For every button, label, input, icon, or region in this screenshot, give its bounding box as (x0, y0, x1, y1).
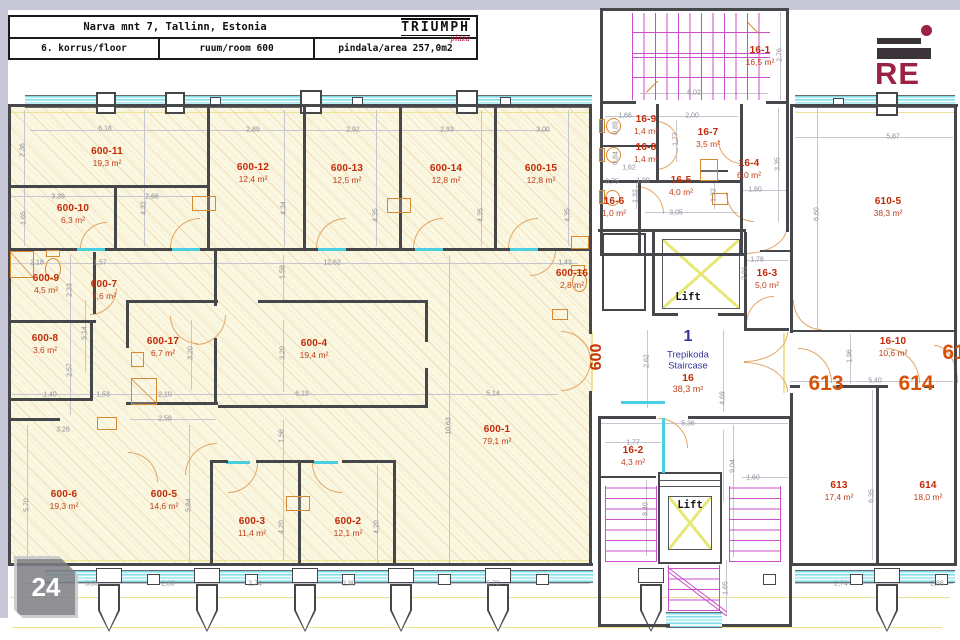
dim-label: 1,80 (748, 187, 762, 194)
dimension-line (27, 425, 28, 563)
room-id: 600-12 (237, 161, 269, 174)
dimension-line (20, 583, 590, 584)
room-id: 16-3 (755, 267, 779, 280)
wall (425, 368, 428, 405)
dim-label: 5,14 (486, 391, 500, 398)
dim-label: 5,70 (24, 498, 31, 512)
room-id: 16-10 (879, 335, 908, 348)
wall (836, 385, 888, 388)
room-cell: ruum/room 600 (160, 39, 315, 58)
staircase-name-en: Staircase (668, 361, 708, 372)
dim-label: 0,84 (613, 151, 620, 165)
wall (790, 104, 958, 107)
room-id: 600-10 (57, 202, 89, 215)
column (878, 586, 896, 630)
door-label-614: 614 (898, 372, 933, 396)
door-label-613: 613 (808, 372, 843, 396)
room-id: 614 (914, 479, 943, 492)
dim-label: 6,02 (687, 90, 701, 97)
door-arc (744, 332, 788, 362)
wall (790, 330, 956, 332)
room-area: 6,0 m² (737, 170, 761, 181)
wall (302, 460, 314, 463)
room-id: 613 (825, 479, 854, 492)
wall (8, 418, 60, 421)
room-area: 12,8 m² (525, 175, 557, 186)
room-label-600-14: 600-1412,8 m² (430, 162, 462, 186)
door-arc (793, 300, 821, 330)
wall (346, 248, 415, 251)
dimension-line (377, 465, 378, 563)
dim-label: 1,00 (636, 178, 650, 185)
wall (790, 104, 793, 333)
wall (600, 8, 789, 11)
wall (214, 338, 217, 403)
wall (210, 460, 228, 463)
room-label-16-1: 16-116,5 m² (746, 44, 775, 68)
window-sill (662, 418, 665, 473)
dimension-line (795, 137, 953, 138)
stair-flight (605, 486, 657, 562)
room-area: 12,8 m² (430, 175, 462, 186)
window-sill (314, 461, 338, 464)
dim-label: 2,91 (742, 266, 749, 280)
wall (126, 303, 129, 348)
room-area: 11,4 m² (238, 528, 266, 539)
dimension-line (283, 255, 284, 303)
wall (598, 416, 656, 419)
room-label-614: 61418,0 m² (914, 479, 943, 503)
dim-label: 10,63 (446, 417, 453, 435)
room-id: 600-6 (50, 488, 79, 501)
column (489, 586, 507, 630)
column-tab (388, 568, 414, 583)
room-id: 600-9 (33, 272, 60, 285)
room-id: 16-4 (737, 157, 761, 170)
wall (790, 563, 956, 566)
wall (598, 416, 601, 626)
dim-label: 1,57 (93, 260, 107, 267)
room-area: 1,4 m² (634, 154, 658, 165)
dim-label: 1,56 (279, 429, 286, 443)
column (100, 586, 118, 630)
door-arc (128, 452, 158, 482)
lift-door-line (660, 486, 720, 487)
room-id: 600-7 (91, 278, 118, 291)
dimension-line (481, 110, 482, 246)
room-id: 600-14 (430, 162, 462, 175)
accent-line (10, 597, 950, 598)
title-block: Narva mnt 7, Tallinn, Estonia TRIUMPH pl… (8, 15, 478, 60)
room-label-600-7: 600-77,6 m² (91, 278, 118, 302)
room-area: 19,4 m² (300, 350, 329, 361)
wall (786, 104, 789, 232)
wall (8, 320, 96, 323)
wall (342, 460, 395, 463)
room-label-600-12: 600-1212,4 m² (237, 161, 269, 185)
room-label-600-10: 600-106,3 m² (57, 202, 89, 226)
room-label-600-3: 600-311,4 m² (238, 515, 266, 539)
dim-label: 4,35 (373, 208, 380, 222)
dim-label: 2,74 (248, 581, 262, 588)
staircase-name-et: Trepikoda (667, 350, 709, 361)
room-id: 600-1 (483, 423, 512, 436)
dim-label: 1,77 (626, 440, 640, 447)
bathroom-fixture (97, 417, 117, 430)
wall (600, 101, 636, 104)
room-area: 6,3 m² (57, 215, 89, 226)
stair-flight (729, 486, 781, 562)
dim-label: 3,05 (669, 210, 683, 217)
lift-car (662, 239, 740, 309)
bathroom-fixture (46, 250, 60, 257)
room-area: 19,3 m² (50, 501, 79, 512)
room-id: 16-5 (669, 174, 693, 187)
pilaster (165, 92, 185, 114)
room-area: 2,8 m² (556, 280, 588, 291)
room-area: 14,6 m² (150, 501, 179, 512)
room-id: 16-1 (746, 44, 775, 57)
dim-label: 4,35 (478, 208, 485, 222)
stair-line (632, 32, 770, 33)
dim-label: 2,93 (440, 127, 454, 134)
dim-label: 5,36 (681, 421, 695, 428)
dimension-line (144, 110, 145, 246)
dim-label: 5,87 (886, 134, 900, 141)
dim-label: 1,40 (43, 392, 57, 399)
wall (105, 248, 172, 251)
logo-dot-icon (921, 25, 932, 36)
wall (876, 388, 879, 565)
dimension-line (12, 394, 558, 395)
room-area: 18,0 m² (914, 492, 943, 503)
dim-label: 1,43 (558, 260, 572, 267)
window-sill (172, 248, 200, 251)
door-arc (561, 361, 591, 391)
wall (600, 8, 603, 104)
dim-label: 2,74 (834, 581, 848, 588)
dimension-line (189, 425, 190, 563)
dim-label: 3,39 (51, 194, 65, 201)
re-logo: RE (875, 24, 941, 98)
lift-label: Lift (675, 291, 700, 303)
dim-label: 2,00 (685, 113, 699, 120)
column-tab (292, 568, 318, 583)
dim-label: 4,69 (720, 391, 727, 405)
dim-label: 1,96 (847, 349, 854, 363)
room-id: 600-2 (334, 515, 363, 528)
dim-label: 5,40 (868, 378, 882, 385)
dim-label: 5,14 (82, 326, 89, 340)
wall (744, 252, 747, 330)
bathroom-fixture (131, 352, 144, 367)
bathroom-fixture (387, 198, 411, 213)
dim-label: 3,20 (280, 346, 287, 360)
room-id: 16-9 (634, 113, 658, 126)
dim-label: 4,35 (565, 208, 572, 222)
column-tab (638, 568, 664, 583)
dim-label: 5,84 (186, 498, 193, 512)
column-tab (536, 574, 549, 585)
room-area: 5,0 m² (755, 280, 779, 291)
dim-label: 3,00 (536, 127, 550, 134)
column-tab (874, 568, 900, 583)
wall (598, 624, 670, 627)
wall (652, 232, 655, 316)
room-label-600-1: 600-179,1 m² (483, 423, 512, 447)
wall (600, 476, 656, 478)
column (296, 586, 314, 630)
room-label-600-4: 600-419,4 m² (300, 337, 329, 361)
room-area: 19,3 m² (91, 158, 123, 169)
wall (722, 624, 792, 627)
wall (688, 416, 792, 419)
wall (718, 313, 747, 316)
wall (598, 229, 746, 232)
dim-label: 2,62 (644, 354, 651, 368)
dim-label: 2,68 (145, 194, 159, 201)
wall (494, 104, 497, 250)
room-label-16-9: 16-91,4 m² (634, 113, 658, 137)
page-number: 24 (32, 572, 61, 603)
wall (303, 104, 306, 250)
dim-label: 2,18 (30, 260, 44, 267)
bathroom-fixture (571, 236, 589, 249)
window-sill (226, 461, 250, 464)
floor-cell: 6. korrus/floor (10, 39, 160, 58)
room-area: 3,6 m² (32, 345, 59, 356)
wall (218, 405, 428, 408)
room-id: 600-13 (331, 162, 363, 175)
dimension-line (647, 330, 648, 408)
bathroom-fixture (286, 496, 310, 511)
dim-label: 6,35 (869, 489, 876, 503)
room-id: 600-16 (556, 267, 588, 280)
room-area: 1,0 m² (602, 208, 626, 219)
dim-label: 2,58 (158, 416, 172, 423)
window-sill (318, 248, 346, 251)
dim-label: 1,32 (633, 189, 640, 203)
staircase-number: 1 (684, 328, 693, 346)
window-sill (77, 248, 105, 251)
room-area: 12,5 m² (331, 175, 363, 186)
dim-label: 2,89 (246, 127, 260, 134)
room-label-600-16: 600-162,8 m² (556, 267, 588, 291)
bathroom-fixture (131, 378, 157, 405)
room-area: 38,3 m² (874, 208, 903, 219)
wall (790, 393, 793, 565)
dim-label: 1,58 (280, 265, 287, 279)
dim-label: 1,65 (21, 211, 28, 225)
column-tab (147, 574, 160, 585)
logo-bar-icon (877, 38, 921, 44)
logo-text: RE (875, 58, 920, 89)
floor-plan-canvas: 600-1119,3 m²600-1212,4 m²600-1312,5 m²6… (0, 0, 960, 640)
room-id: 600-15 (525, 162, 557, 175)
dim-label: 1,32 (711, 188, 718, 202)
room-id: 16-6 (602, 195, 626, 208)
door-arc (530, 250, 556, 276)
room-area: 12,4 m² (237, 174, 269, 185)
room-label-600-11: 600-1119,3 m² (91, 145, 123, 169)
dimension-line (284, 110, 285, 246)
dimension-line (872, 390, 873, 560)
room-area: 79,1 m² (483, 436, 512, 447)
room-label-600-17: 600-176,7 m² (147, 335, 179, 359)
room-label-600-8: 600-83,6 m² (32, 332, 59, 356)
window-sill (415, 248, 443, 251)
dimension-line (376, 110, 377, 246)
dim-label: 1,60 (746, 475, 760, 482)
wall (258, 300, 428, 303)
accent-line (12, 560, 590, 561)
room-id: 16-8 (634, 141, 658, 154)
room-label-16-8: 16-81,4 m² (634, 141, 658, 165)
wall (954, 104, 957, 566)
room-area: 10,6 m² (879, 348, 908, 359)
wall (8, 185, 208, 188)
column-tab (763, 574, 776, 585)
wall (214, 251, 217, 306)
dim-label: 2,10 (158, 392, 172, 399)
dim-label: 8,40 (643, 502, 650, 516)
dim-label: 2,57 (67, 363, 74, 377)
dim-label: 12,62 (323, 260, 341, 267)
door-arc (196, 315, 226, 345)
room-label-600-15: 600-1512,8 m² (525, 162, 557, 186)
room-label-600-6: 600-619,3 m² (50, 488, 79, 512)
wall (90, 322, 93, 400)
dim-label: 3,35 (775, 157, 782, 171)
dim-label: 1,66 (618, 113, 632, 120)
dim-label: 2,90 (342, 581, 356, 588)
door-label-600: 600 (588, 344, 606, 371)
wall (126, 300, 218, 303)
wall (589, 391, 592, 566)
staircase-room-area: 38,3 m² (673, 384, 704, 394)
room-id: 600-17 (147, 335, 179, 348)
room-area: 1,4 m² (634, 126, 658, 137)
dim-label: 4,34 (281, 201, 288, 215)
room-area: 6,7 m² (147, 348, 179, 359)
room-id: 600-3 (238, 515, 266, 528)
dim-label: 2,33 (67, 283, 74, 297)
dim-label: 5,73 (486, 581, 500, 588)
room-label-16-5: 16-54,0 m² (669, 174, 693, 198)
room-id: 600-8 (32, 332, 59, 345)
column (392, 586, 410, 630)
dim-label: 6,60 (814, 207, 821, 221)
dim-label: 4,20 (374, 520, 381, 534)
wall (207, 104, 210, 250)
wall (8, 104, 592, 107)
room-id: 600-5 (150, 488, 179, 501)
room-area: 12,1 m² (334, 528, 363, 539)
wall (589, 104, 592, 334)
wall (399, 104, 402, 250)
room-label-16-6: 16-61,0 m² (602, 195, 626, 219)
door-arc (170, 218, 200, 248)
dim-label: 1,62 (622, 165, 636, 172)
wall (443, 248, 510, 251)
dim-label: 3,28 (56, 427, 70, 434)
room-label-600-13: 600-1312,5 m² (331, 162, 363, 186)
wall (744, 328, 789, 331)
column-tab (850, 574, 863, 585)
dim-label: 1,53 (96, 392, 110, 399)
wall (210, 460, 213, 565)
wall (652, 313, 678, 316)
address: Narva mnt 7, Tallinn, Estonia (10, 21, 340, 33)
door-label-61x: 61 (942, 341, 960, 365)
lift-label: Lift (677, 499, 702, 511)
room-id: 600-11 (91, 145, 123, 158)
door-arc (228, 463, 258, 493)
dim-label: 1,78 (750, 257, 764, 264)
room-label-16-2: 16-24,3 m² (621, 444, 645, 468)
door-arc (746, 296, 774, 324)
window-band (666, 612, 722, 628)
title-row: Narva mnt 7, Tallinn, Estonia TRIUMPH pl… (10, 17, 476, 39)
door-arc (561, 331, 591, 361)
dim-label: 2,76 (777, 48, 784, 62)
triumph-plaza-logo: TRIUMPH plaza (401, 18, 470, 43)
room-label-600-2: 600-212,1 m² (334, 515, 363, 539)
dim-label: 0,89 (613, 121, 620, 135)
wall (200, 248, 318, 251)
dim-label: 2,88 (161, 581, 175, 588)
column-tab (96, 568, 122, 583)
dim-label: 0,75 (605, 179, 619, 186)
room-area: 17,4 m² (825, 492, 854, 503)
door-arc (312, 463, 342, 493)
room-id: 16-7 (696, 126, 720, 139)
dimension-line (130, 419, 216, 420)
dimension-line (24, 110, 25, 246)
window-sill (510, 248, 538, 251)
room-area: 3,5 m² (696, 139, 720, 150)
dim-label: 1,77 (673, 132, 680, 146)
dimension-line (449, 255, 450, 563)
dimension-line (568, 110, 569, 246)
dim-label: 6,19 (295, 391, 309, 398)
dim-label: 2,36 (20, 143, 27, 157)
door-arc (80, 222, 107, 249)
room-id: 600-4 (300, 337, 329, 350)
column-tab (194, 568, 220, 583)
wall (600, 253, 744, 256)
room-area: 4,0 m² (669, 187, 693, 198)
room-label-600-9: 600-94,5 m² (33, 272, 60, 296)
wall (425, 302, 428, 342)
window-sill (621, 401, 665, 404)
wall (760, 250, 790, 252)
dim-label: 6,18 (98, 126, 112, 133)
bathroom-fixture (599, 148, 605, 162)
bathroom-fixture (599, 119, 605, 133)
bathroom-fixture (552, 309, 568, 320)
room-id: 610-5 (874, 195, 903, 208)
dim-label: 3,20 (188, 346, 195, 360)
dimension-line (70, 255, 71, 415)
room-label-16-4: 16-46,0 m² (737, 157, 761, 181)
door-arc (508, 218, 538, 248)
dim-label: 2,92 (346, 127, 360, 134)
bathroom-fixture (192, 196, 216, 211)
room-label-16-7: 16-73,5 m² (696, 126, 720, 150)
dimension-line (10, 196, 206, 197)
bathroom-fixture (700, 159, 718, 181)
